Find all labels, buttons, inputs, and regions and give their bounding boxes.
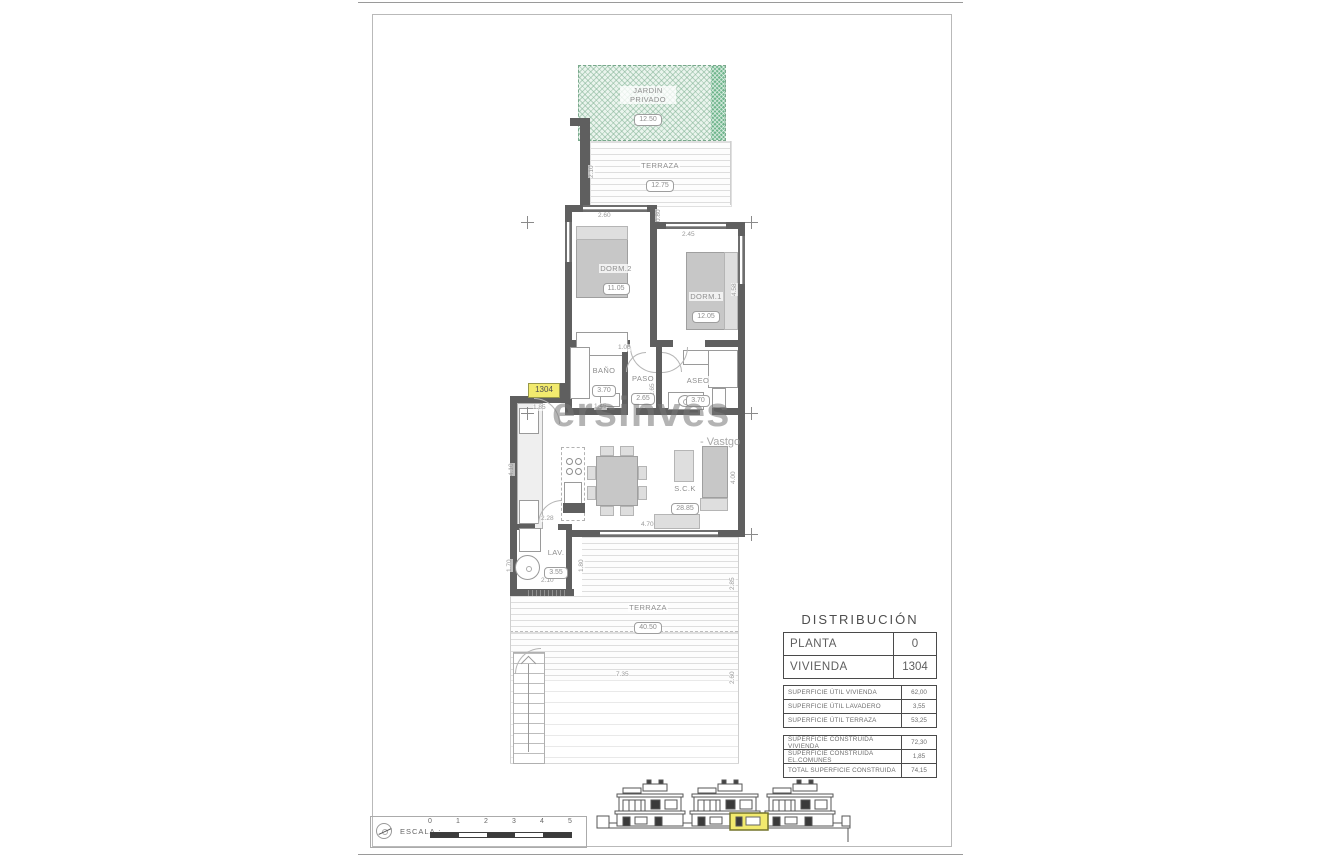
room-name: DORM.2 bbox=[599, 264, 633, 273]
watermark-text: ersinves bbox=[552, 388, 730, 436]
room-area-value: 12.50 bbox=[634, 114, 662, 126]
row-value: 53,25 bbox=[901, 714, 936, 727]
scale-tick: 0 bbox=[428, 818, 432, 825]
survey-cross bbox=[745, 216, 758, 229]
row-value: 74,15 bbox=[901, 764, 936, 777]
scale-tick: 3 bbox=[512, 818, 516, 825]
terrace-top-right-edge bbox=[730, 141, 731, 205]
dining-table bbox=[596, 456, 638, 506]
wall-segment bbox=[738, 415, 745, 537]
table-row: SUPERFICIE CONSTRUIDA VIVIENDA 72,30 bbox=[784, 736, 936, 750]
dimension-label: 1.00 bbox=[618, 344, 631, 351]
scale-segment bbox=[543, 833, 571, 837]
row-value: 1,85 bbox=[901, 750, 936, 763]
scale-segment bbox=[431, 833, 459, 837]
window-dorm2 bbox=[583, 205, 647, 212]
row-label: PLANTA bbox=[784, 638, 893, 650]
row-value: 3,55 bbox=[901, 700, 936, 713]
room-name: LAV. bbox=[547, 548, 566, 557]
stove-burner bbox=[566, 468, 573, 475]
room-label-lav: LAV. 3.55 bbox=[536, 542, 576, 579]
room-label-terraza-bottom: TERRAZA 40.50 bbox=[618, 597, 678, 634]
highlighted-unit bbox=[730, 813, 768, 830]
room-name: BAÑO bbox=[592, 366, 617, 375]
dimension-label: 7.35 bbox=[616, 671, 629, 678]
bed-dorm2-pillow bbox=[576, 226, 628, 240]
dimension-label: 2.10 bbox=[588, 165, 595, 178]
wall-segment bbox=[572, 530, 600, 537]
dimension-label: 0.80 bbox=[655, 209, 662, 222]
stove-burner bbox=[575, 468, 582, 475]
row-label: SUPERFICIE ÚTIL VIVIENDA bbox=[784, 689, 901, 696]
dimension-label: 4.70 bbox=[641, 521, 654, 528]
room-label-terraza-top: TERRAZA 12.75 bbox=[630, 155, 690, 192]
terrace-bottom-area bbox=[582, 537, 738, 596]
sheet-bottom-edge bbox=[358, 854, 963, 855]
dining-chair bbox=[638, 486, 647, 500]
room-name: ASEO bbox=[686, 376, 710, 385]
room-label-dorm1: DORM.1 12.05 bbox=[678, 286, 734, 323]
sheet-top-edge bbox=[358, 2, 963, 3]
dimension-label: 4.00 bbox=[730, 471, 737, 484]
kitchen-fridge bbox=[519, 500, 539, 524]
dimension-label: 1.85 bbox=[533, 404, 546, 411]
dining-chair bbox=[587, 466, 596, 480]
building-section-elevation bbox=[592, 772, 862, 846]
room-label-dorm2: DORM.2 11.05 bbox=[588, 258, 644, 295]
terrace-right-edge bbox=[738, 537, 739, 764]
dining-chair bbox=[600, 506, 614, 516]
staircase-arrow-line bbox=[528, 664, 529, 752]
room-label-jardin: JARDÍN PRIVADO 12.50 bbox=[620, 86, 676, 126]
scale-segment bbox=[487, 833, 515, 837]
room-area-value: 11.05 bbox=[603, 283, 630, 295]
dimension-label: 1.70 bbox=[506, 559, 513, 572]
scale-tick: 2 bbox=[484, 818, 488, 825]
wall-segment bbox=[650, 229, 657, 347]
dimension-label: 2.45 bbox=[682, 231, 695, 238]
dimension-label: 2.85 bbox=[729, 577, 736, 590]
useful-surface-table: SUPERFICIE ÚTIL VIVIENDA 62,00 SUPERFICI… bbox=[783, 685, 937, 728]
scale-tick: 1 bbox=[456, 818, 460, 825]
window-dorm1 bbox=[666, 222, 726, 229]
table-row: SUPERFICIE CONSTRUIDA EL.COMUNES 1,85 bbox=[784, 750, 936, 764]
room-area-value: 40.50 bbox=[634, 622, 662, 634]
stove-burner bbox=[566, 458, 573, 465]
dining-chair bbox=[600, 446, 614, 456]
table-row: SUPERFICIE ÚTIL VIVIENDA 62,00 bbox=[784, 686, 936, 700]
plan-sheet: JARDÍN PRIVADO 12.50 TERRAZA 12.75 2.10 … bbox=[0, 0, 1320, 859]
dimension-label: 4.10 bbox=[508, 463, 515, 476]
distribution-info-table: PLANTA 0 VIVIENDA 1304 bbox=[783, 632, 937, 679]
dimension-label: 2.60 bbox=[598, 212, 611, 219]
survey-cross bbox=[745, 528, 758, 541]
dimension-label: 2.60 bbox=[729, 671, 736, 684]
table-row: PLANTA 0 bbox=[784, 633, 936, 656]
row-value: 1304 bbox=[893, 656, 936, 678]
survey-cross bbox=[745, 407, 758, 420]
row-label: SUPERFICIE CONSTRUIDA VIVIENDA bbox=[784, 736, 901, 750]
scale-bar bbox=[430, 832, 572, 838]
distribution-title: DISTRIBUCIÓN bbox=[783, 612, 937, 627]
room-area-value: 28.85 bbox=[671, 503, 699, 515]
wall-segment bbox=[705, 340, 745, 347]
row-label: SUPERFICIE ÚTIL TERRAZA bbox=[784, 717, 901, 724]
window-dorm2-side bbox=[565, 222, 572, 262]
room-name: PASO bbox=[631, 374, 655, 383]
row-label: VIVIENDA bbox=[784, 661, 893, 673]
room-area-value: 12.05 bbox=[692, 311, 720, 323]
row-value: 72,30 bbox=[901, 736, 936, 749]
room-name: TERRAZA bbox=[640, 161, 680, 170]
scale-segment bbox=[515, 833, 543, 837]
room-area-value: 12.75 bbox=[646, 180, 674, 192]
row-value: 0 bbox=[893, 633, 936, 655]
table-row: VIVIENDA 1304 bbox=[784, 656, 936, 678]
room-label-sck: S.C.K 28.85 bbox=[660, 478, 710, 515]
scale-tick: 4 bbox=[540, 818, 544, 825]
terrace-left-edge bbox=[510, 596, 511, 764]
dining-chair bbox=[620, 506, 634, 516]
stove-burner bbox=[575, 458, 582, 465]
row-label: SUPERFICIE ÚTIL LAVADERO bbox=[784, 703, 901, 710]
table-row: SUPERFICIE ÚTIL LAVADERO 3,55 bbox=[784, 700, 936, 714]
tv-bench bbox=[654, 514, 700, 529]
table-row: SUPERFICIE ÚTIL TERRAZA 53,25 bbox=[784, 714, 936, 727]
survey-cross bbox=[521, 216, 534, 229]
dimension-label: 1.80 bbox=[578, 559, 585, 572]
dining-chair bbox=[638, 466, 647, 480]
dining-chair bbox=[620, 446, 634, 456]
watermark-subtext: - Vastgo bbox=[700, 436, 740, 448]
scale-tick: 5 bbox=[568, 818, 572, 825]
room-name: JARDÍN PRIVADO bbox=[620, 86, 676, 104]
garden-hedge-strip bbox=[711, 66, 725, 140]
scale-segment bbox=[459, 833, 487, 837]
room-area-value: 3.55 bbox=[544, 567, 568, 579]
row-value: 62,00 bbox=[901, 686, 936, 699]
sliding-door bbox=[600, 530, 718, 537]
room-name: DORM.1 bbox=[689, 292, 723, 301]
window-dorm1-side bbox=[738, 236, 745, 284]
dimension-label: 2.28 bbox=[541, 515, 554, 522]
wall-segment bbox=[563, 503, 585, 513]
room-name: S.C.K bbox=[673, 484, 697, 493]
room-name: TERRAZA bbox=[628, 603, 668, 612]
dining-chair bbox=[587, 486, 596, 500]
row-label: SUPERFICIE CONSTRUIDA EL.COMUNES bbox=[784, 750, 901, 764]
